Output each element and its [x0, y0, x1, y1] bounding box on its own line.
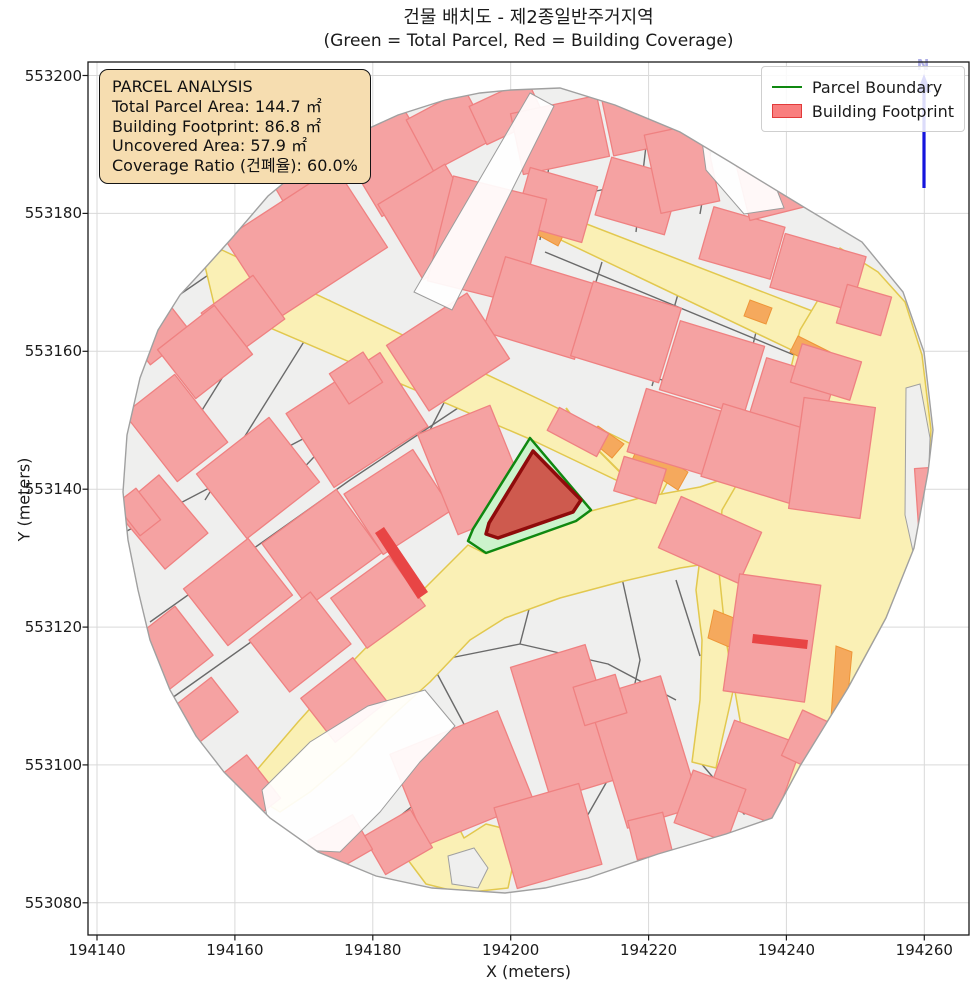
- x-tick: 194220: [614, 941, 684, 959]
- parcel-analysis-title: PARCEL ANALYSIS: [112, 77, 358, 97]
- x-axis-label: X (meters): [88, 962, 969, 981]
- y-axis-label: Y (meters): [15, 440, 34, 560]
- total-parcel-area: Total Parcel Area: 144.7 ㎡: [112, 97, 358, 117]
- x-tick: 194240: [751, 941, 821, 959]
- legend-label: Parcel Boundary: [812, 78, 942, 97]
- x-tick: 194180: [338, 941, 408, 959]
- building-footprint-area: Building Footprint: 86.8 ㎡: [112, 117, 358, 137]
- y-tick: 553100: [12, 756, 82, 774]
- coverage-ratio: Coverage Ratio (건폐율): 60.0%: [112, 156, 358, 176]
- legend-item-parcel-boundary: Parcel Boundary: [772, 75, 954, 99]
- legend-item-building-footprint: Building Footprint: [772, 99, 954, 123]
- y-tick: 553080: [12, 894, 82, 912]
- y-tick: 553120: [12, 618, 82, 636]
- x-tick: 194260: [889, 941, 959, 959]
- uncovered-area: Uncovered Area: 57.9 ㎡: [112, 136, 358, 156]
- figure: 건물 배치도 - 제2종일반주거지역 (Green = Total Parcel…: [0, 0, 980, 990]
- building-footprint: [132, 204, 213, 281]
- x-tick: 194160: [200, 941, 270, 959]
- x-tick: 194140: [62, 941, 132, 959]
- parcel-boundary-line-swatch: [772, 86, 802, 88]
- legend[interactable]: Parcel Boundary Building Footprint: [761, 66, 965, 132]
- y-tick: 553200: [12, 67, 82, 85]
- building-footprint-patch-swatch: [772, 104, 802, 118]
- building-footprint: [789, 398, 876, 519]
- y-tick: 553180: [12, 204, 82, 222]
- parcel-analysis-box: PARCEL ANALYSIS Total Parcel Area: 144.7…: [99, 69, 371, 184]
- y-tick: 553160: [12, 342, 82, 360]
- legend-label: Building Footprint: [812, 102, 954, 121]
- x-tick: 194200: [476, 941, 546, 959]
